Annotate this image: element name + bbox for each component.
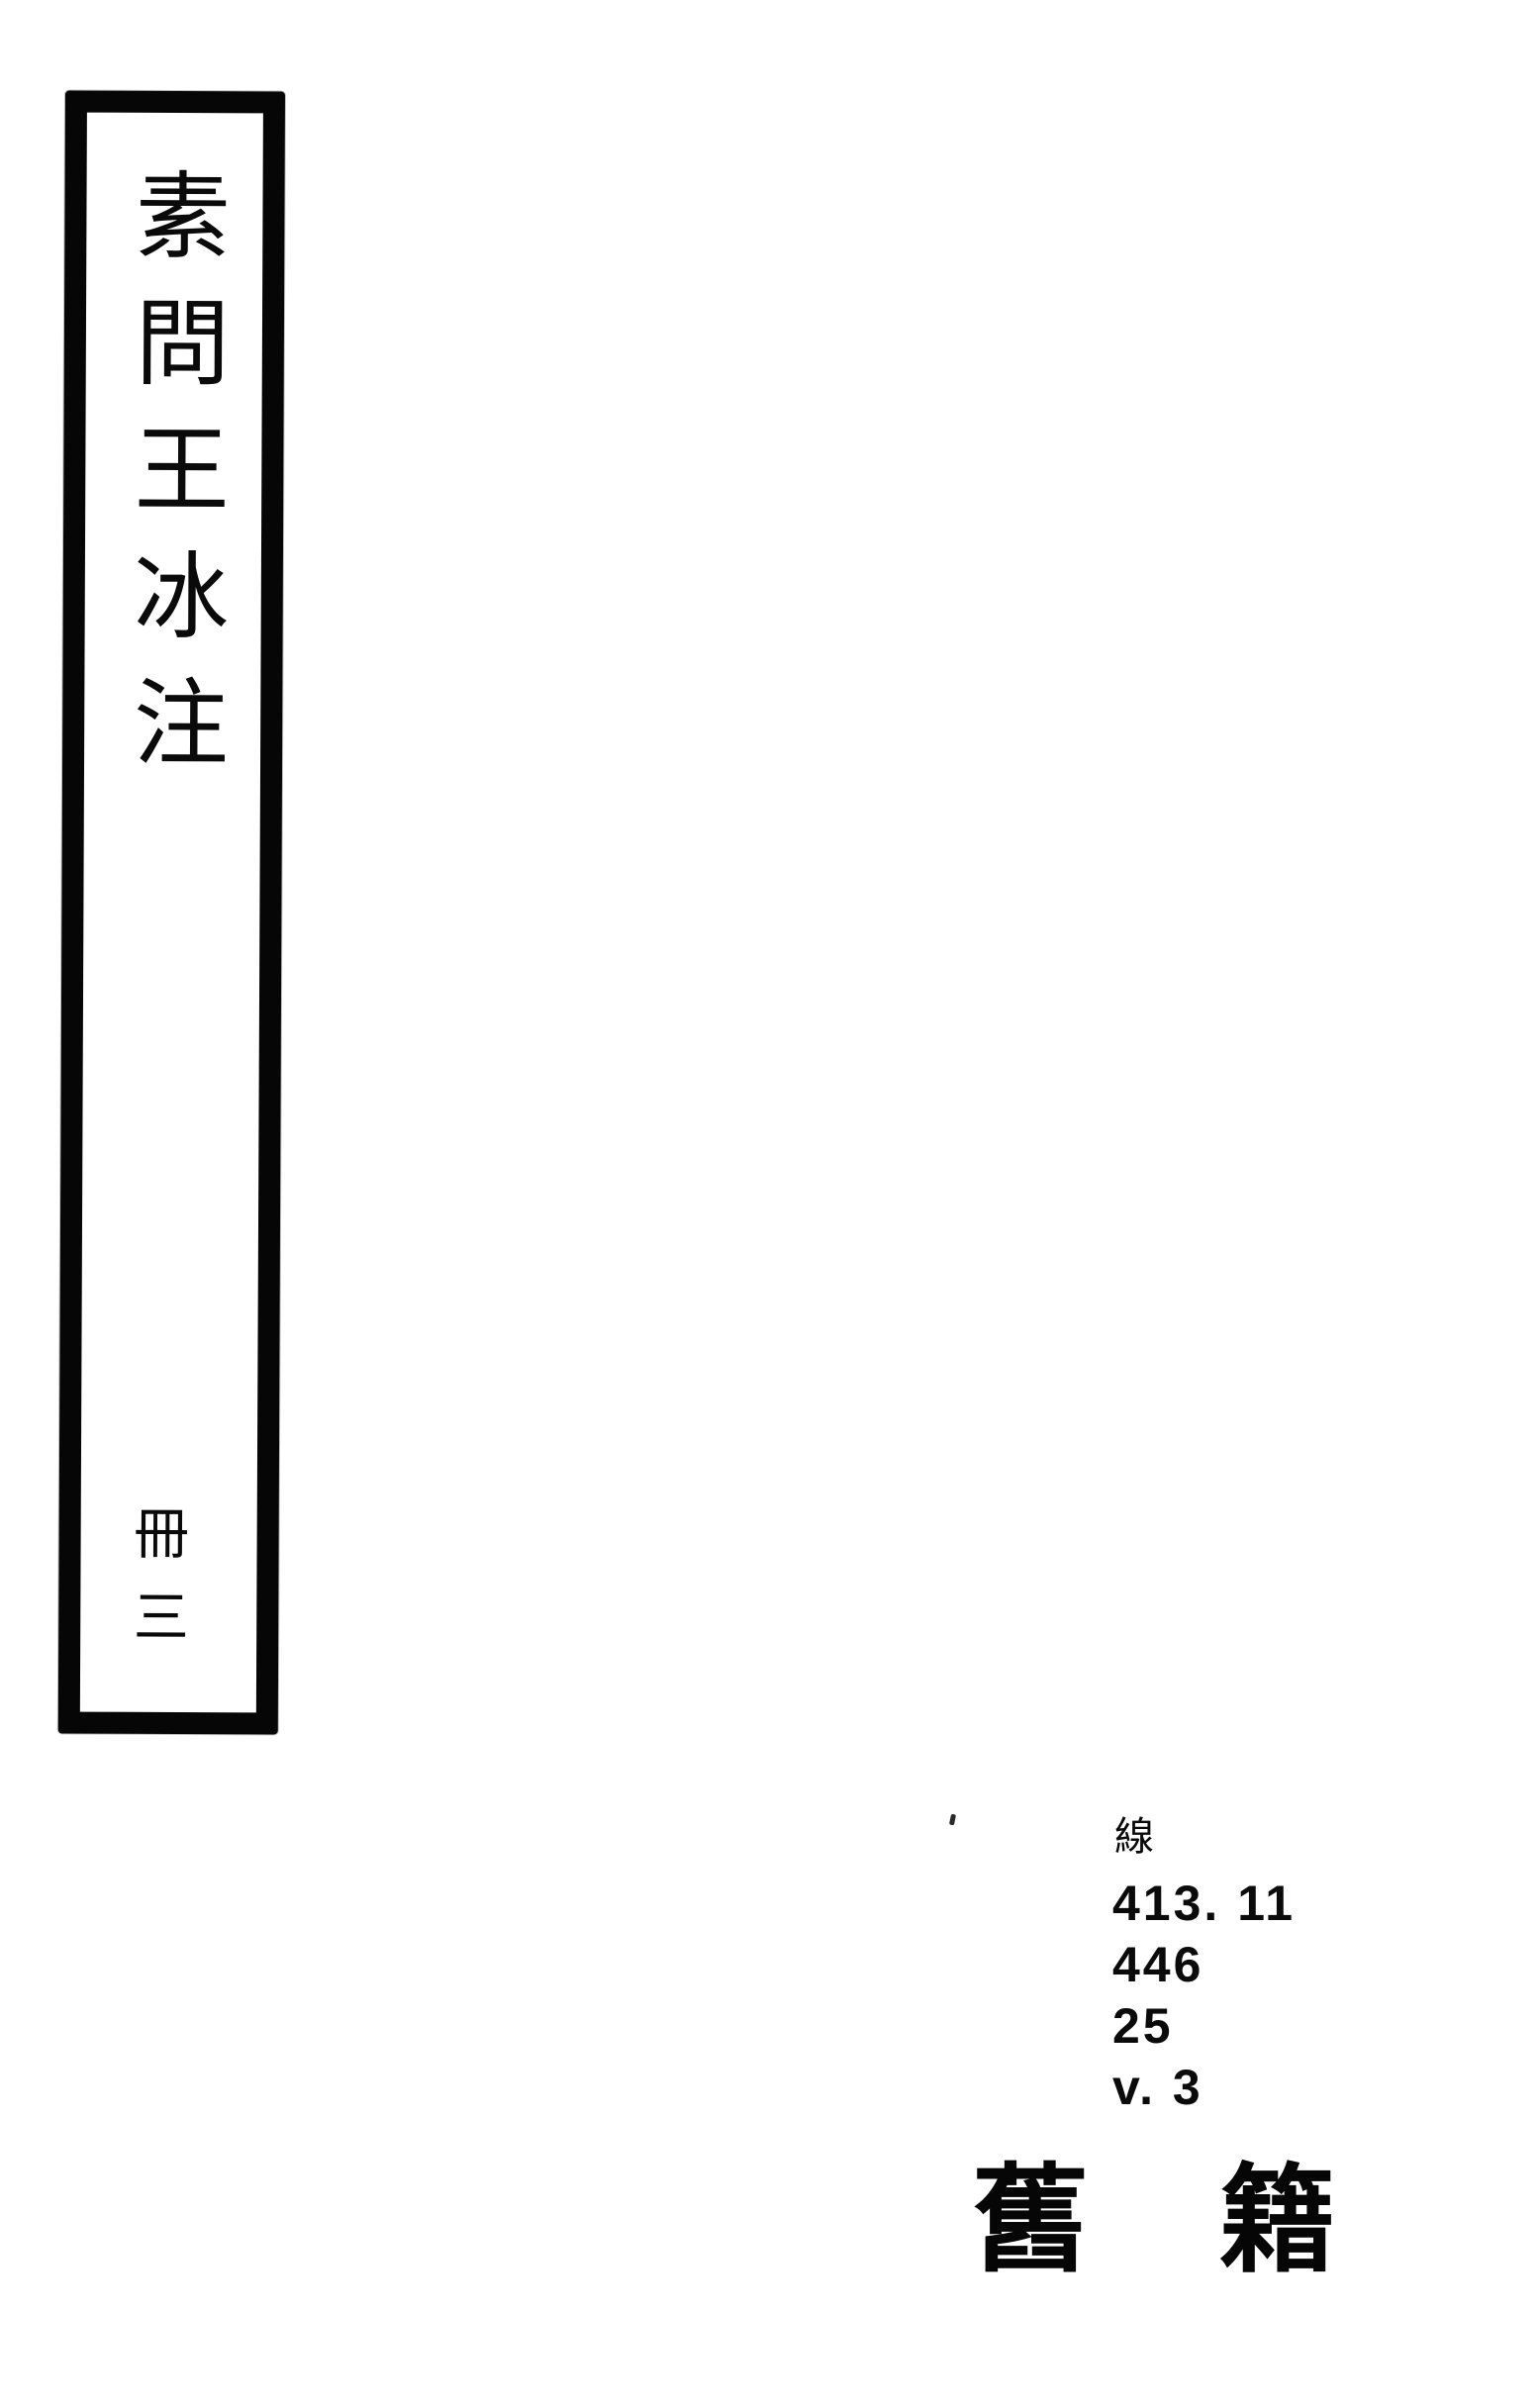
spine-label-frame: 素問王冰注 冊三 xyxy=(58,91,285,1735)
call-number-block: 線 413. 11 446 25 v. 3 xyxy=(1112,1815,1296,2118)
scanned-book-spine-page: 素問王冰注 冊三 線 413. 11 446 25 v. 3 舊 籍 xyxy=(0,0,1538,2408)
call-number-line: 446 xyxy=(1112,1934,1296,1995)
call-number-line: v. 3 xyxy=(1112,2057,1296,2118)
call-number-line: 413. 11 xyxy=(1112,1873,1296,1934)
scan-artifact-speck xyxy=(949,1814,956,1826)
collection-label: 舊 籍 xyxy=(972,2158,1336,2286)
collection-char: 舊 xyxy=(972,2158,1089,2286)
collection-char: 籍 xyxy=(1219,2158,1336,2286)
call-number-line: 25 xyxy=(1112,1995,1296,2057)
call-number-category: 線 xyxy=(1114,1815,1296,1859)
book-title-vertical: 素問王冰注 xyxy=(124,166,222,800)
volume-label: 冊三 xyxy=(128,1504,184,1671)
